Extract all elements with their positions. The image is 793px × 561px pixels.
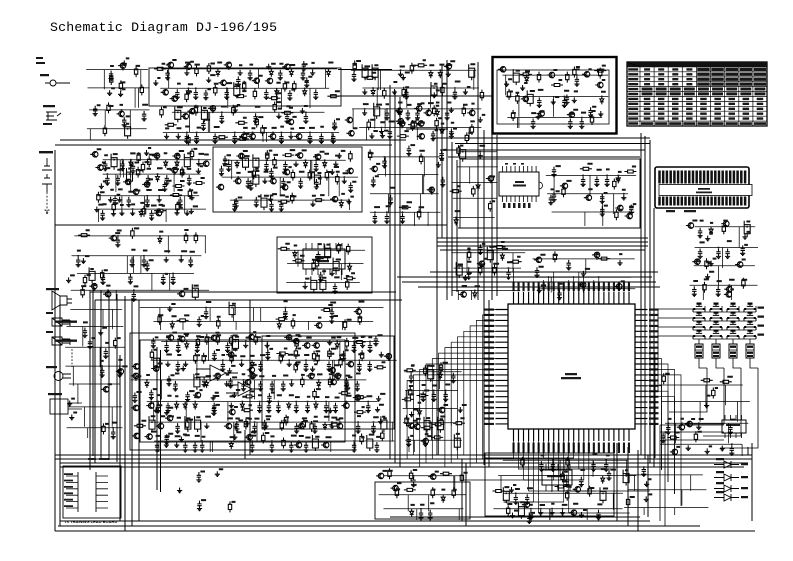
svg-text:TX TRAINING LEAD BOARD: TX TRAINING LEAD BOARD xyxy=(64,519,117,524)
svg-text:Schematic Diagram DJ-196/195: Schematic Diagram DJ-196/195 xyxy=(50,20,277,35)
